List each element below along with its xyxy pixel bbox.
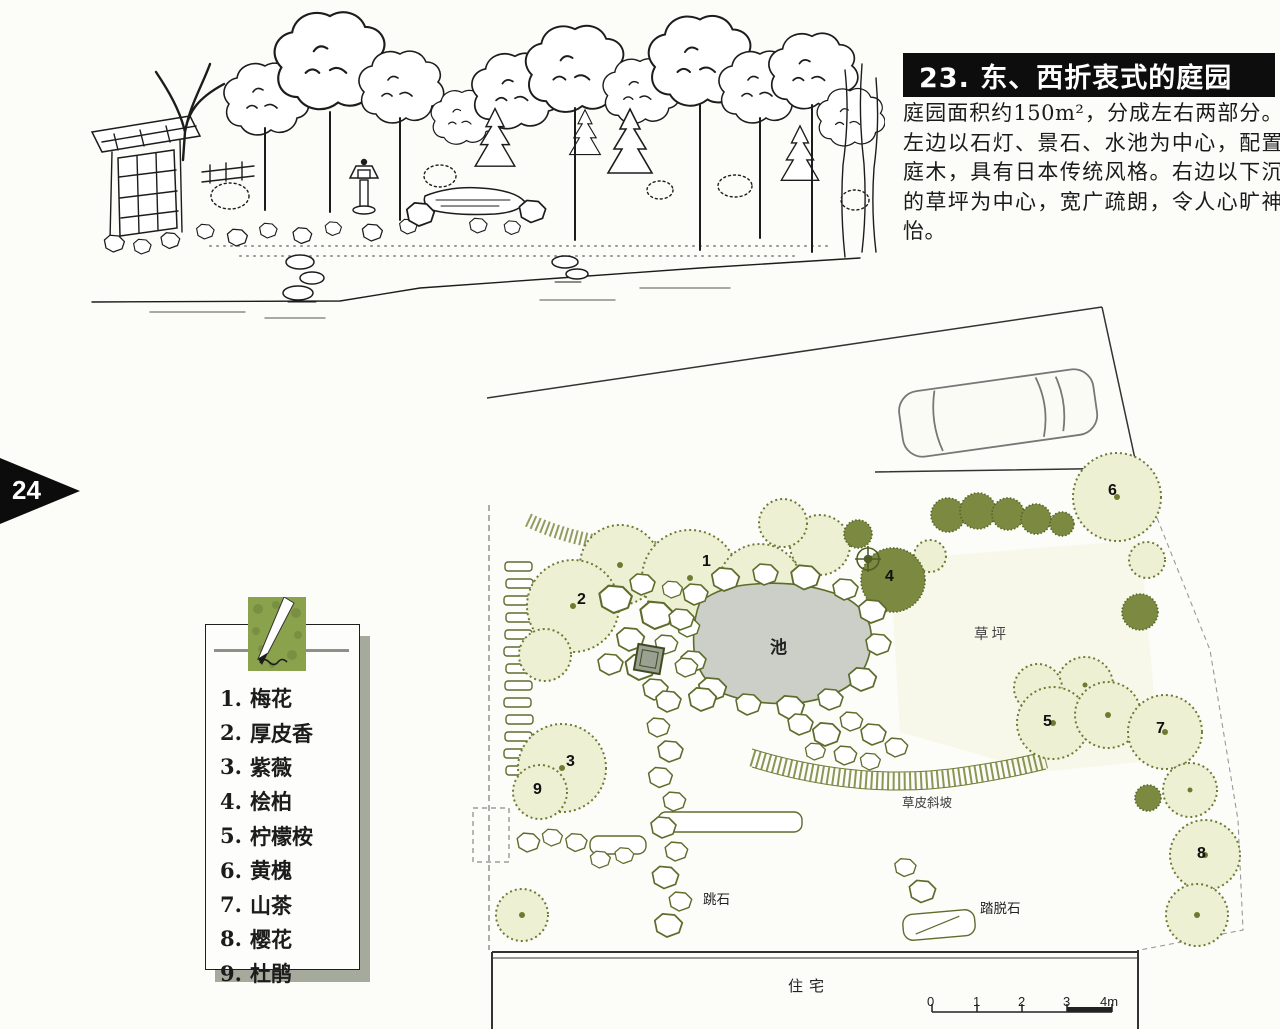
legend-item: 3.紫薇 <box>220 750 359 784</box>
plan-marker-7: 7 <box>1156 720 1165 738</box>
shoe-stone-group <box>895 859 976 941</box>
scale-tick-2: 2 <box>1018 994 1025 1009</box>
legend-item: 2.厚皮香 <box>220 715 359 749</box>
section-title-banner: 23. 东、西折衷式的庭园 <box>903 53 1275 97</box>
legend-item: 4.桧柏 <box>220 784 359 818</box>
book-page: 23. 东、西折衷式的庭园 庭园面积约150m²，分成左右两部分。左边以石灯、景… <box>0 0 1280 1029</box>
legend-item: 6.黄槐 <box>220 853 359 887</box>
intro-text: 庭园面积约150m²，分成左右两部分。左边以石灯、景石、水池为中心，配置庭木，具… <box>903 99 1280 247</box>
legend-item: 7.山茶 <box>220 887 359 921</box>
stone-lantern-sketch <box>350 160 378 215</box>
garden-plan-drawing <box>470 295 1280 1029</box>
scale-tick-3: 3 <box>1063 994 1070 1009</box>
section-title: 23. 东、西折衷式的庭园 <box>919 56 1232 95</box>
plan-marker-6: 6 <box>1108 482 1117 500</box>
plan-marker-4: 4 <box>885 568 894 586</box>
plan-marker-3: 3 <box>566 753 575 771</box>
garden-sketch-illustration <box>55 5 885 325</box>
pond-label: 池 <box>770 633 787 658</box>
lawn-label: 草坪 <box>974 623 1009 644</box>
page-number-tab: 24 <box>0 458 80 524</box>
legend-item: 9.杜鹃 <box>220 956 359 990</box>
plan-marker-8: 8 <box>1197 845 1206 863</box>
residence-label: 住宅 <box>788 975 830 996</box>
legend-item: 8.樱花 <box>220 922 359 956</box>
plan-marker-2: 2 <box>577 591 586 609</box>
scale-tick-0: 0 <box>927 994 934 1009</box>
plan-marker-9: 9 <box>533 781 542 799</box>
scale-tick-4m: 4m <box>1100 994 1118 1009</box>
stone-basin-symbol <box>634 644 664 674</box>
scale-tick-1: 1 <box>973 994 980 1009</box>
shoe-stone-label: 踏脱石 <box>980 897 1021 917</box>
plant-legend-list: 1.梅花 2.厚皮香 3.紫薇 4.桧柏 5.柠檬桉 6.黄槐 7.山茶 8.樱… <box>206 625 359 991</box>
plant-legend-box: 1.梅花 2.厚皮香 3.紫薇 4.桧柏 5.柠檬桉 6.黄槐 7.山茶 8.樱… <box>205 624 360 970</box>
car-plan-symbol <box>897 367 1100 460</box>
pen-drawing-icon <box>248 597 306 671</box>
plan-marker-5: 5 <box>1043 713 1052 731</box>
page-number: 24 <box>12 475 41 506</box>
turf-slope-label: 草皮斜坡 <box>902 792 952 811</box>
intro-paragraph-block: 庭园面积约150m²，分成左右两部分。左边以石灯、景石、水池为中心，配置庭木，具… <box>903 99 1280 247</box>
stepping-stones-label: 跳石 <box>703 888 730 908</box>
legend-item: 1.梅花 <box>220 681 359 715</box>
legend-item: 5.柠檬桉 <box>220 819 359 853</box>
plan-marker-1: 1 <box>702 553 711 571</box>
